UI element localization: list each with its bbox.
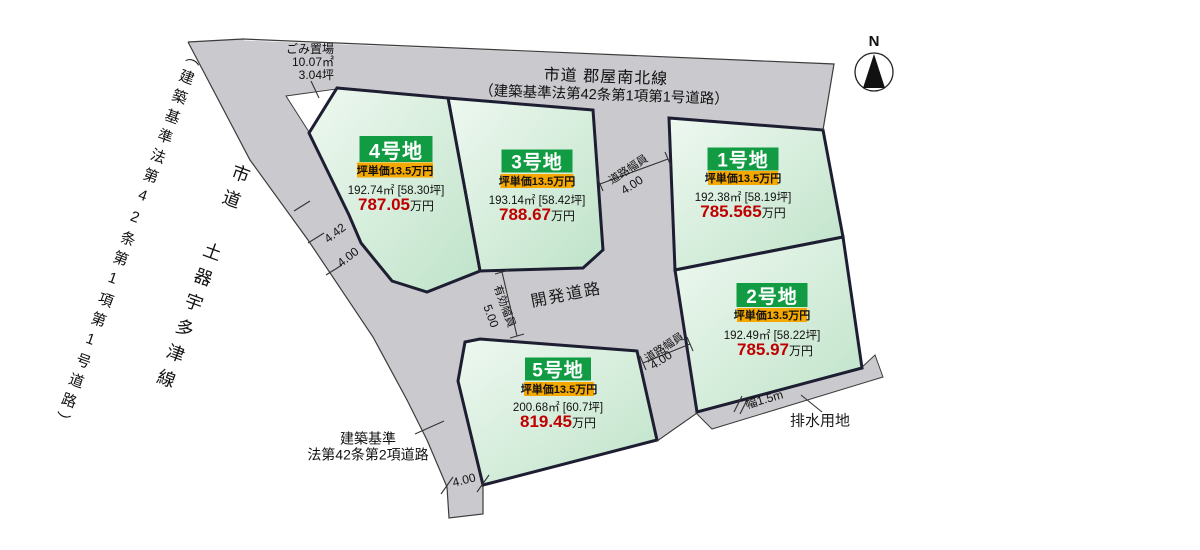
plot-2-unit-price-badge: 坪単価13.5万円 [737,308,807,322]
compass: N [855,33,893,91]
plot-1-unit-price-badge: 坪単価13.5万円 [708,171,778,185]
plot-3-price-suffix: 万円 [551,209,575,223]
plot-1-price-value: 785.565 [700,202,761,221]
plot-2-name-badge: 2号地 [737,283,808,307]
compass-north-label: N [869,33,880,50]
plot-5-name-badge: 5号地 [525,358,591,381]
garbage-line1: ごみ置場 [262,43,334,56]
plot-4-unit-price-badge: 坪単価13.5万円 [357,163,433,178]
bottom-road-note: 建築基準 法第42条第2項道路 [283,431,453,462]
drainage-label: 排水用地 [790,410,850,431]
plot-1-name-badge: 1号地 [708,148,779,171]
garbage-line2: 10.07㎡ [262,56,334,69]
plot-2-price-suffix: 万円 [789,344,813,358]
plot-5-unit-price-badge: 坪単価13.5万円 [524,382,594,396]
plot-4-price: 787.05万円 [358,195,434,215]
plot-1-price: 785.565万円 [700,202,785,222]
plot-3-price-value: 788.67 [499,205,551,224]
plot-4-price-value: 787.05 [358,195,410,214]
plot-1-price-suffix: 万円 [762,206,786,220]
plot-5-price: 819.45万円 [520,412,596,432]
plot-3-name-badge: 3号地 [502,150,573,173]
plot-5-price-value: 819.45 [520,412,572,431]
bottom-road-note-line2: 法第42条第2項道路 [307,446,428,462]
garbage-area-label: ごみ置場 10.07㎡ 3.04坪 [262,43,334,82]
garbage-line3: 3.04坪 [262,69,334,82]
plot-2-price-value: 785.97 [737,340,789,359]
plot-5-price-suffix: 万円 [572,416,596,430]
plot-3-price: 788.67万円 [499,205,575,225]
plot-4-name-badge: 4号地 [360,136,433,162]
site-plan: N 市道 郡屋南北線 （建築基準法第42条第1項第1号道路） （建築基準法第42… [0,0,1200,550]
plot-3-unit-price-badge: 坪単価13.5万円 [501,174,574,188]
bottom-road-note-line1: 建築基準 [340,430,396,446]
plot-4-price-suffix: 万円 [410,199,434,213]
plot-2-price: 785.97万円 [737,340,813,360]
